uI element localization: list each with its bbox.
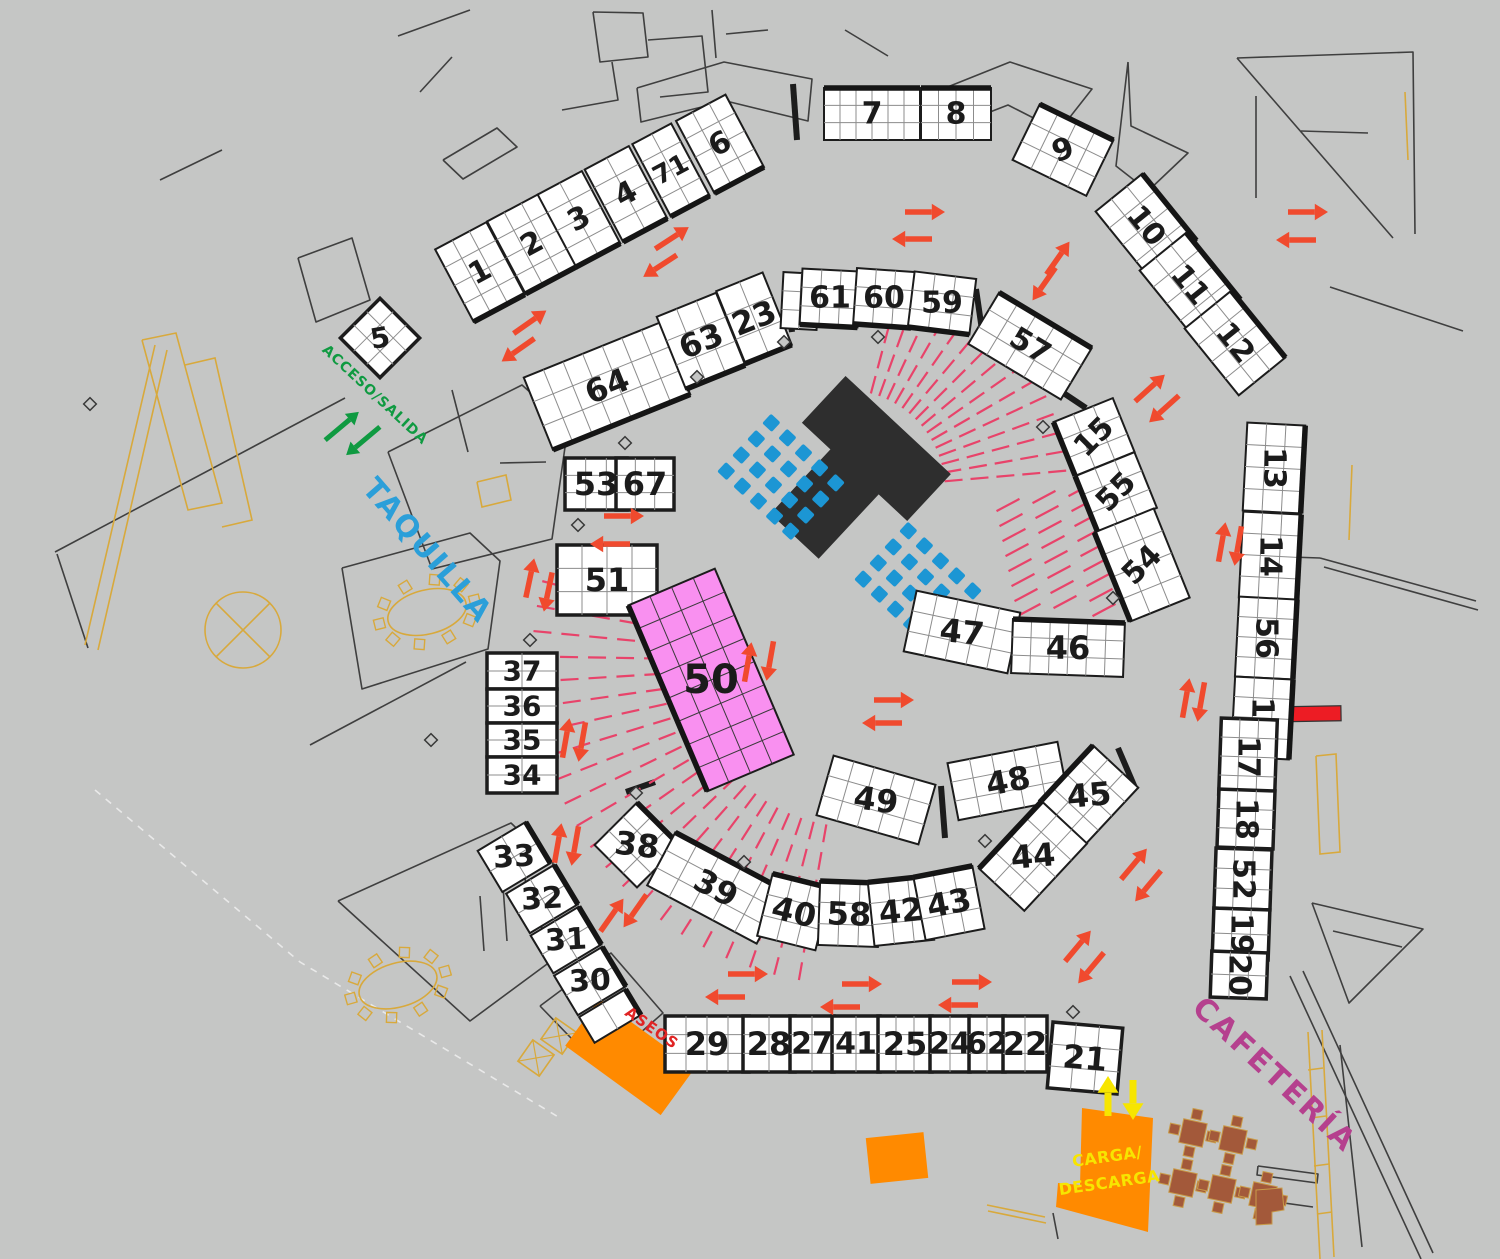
stall-number: 61 <box>809 281 851 316</box>
stall-number: 25 <box>883 1025 928 1063</box>
stall-number: 13 <box>1257 447 1292 489</box>
stall-36: 36 <box>487 689 557 723</box>
stall-number: 59 <box>921 286 963 321</box>
stall-43: 43 <box>913 866 984 940</box>
stall-number: 58 <box>826 894 872 934</box>
stall-number: 29 <box>685 1025 730 1063</box>
stall-number: 50 <box>683 657 739 703</box>
cafe-table-top <box>1179 1119 1207 1147</box>
stall-number: 36 <box>503 690 542 723</box>
cafe-chair <box>1246 1138 1258 1150</box>
cafe-chair <box>1231 1115 1243 1127</box>
stall-number: 24 <box>929 1027 971 1062</box>
stall-thick-edge <box>1013 619 1125 623</box>
cafe-chair <box>1197 1179 1209 1191</box>
stall-37: 37 <box>487 653 557 689</box>
cafe-chair <box>1212 1202 1224 1214</box>
stall-25: 25 <box>878 1016 932 1072</box>
stall-61: 61 <box>800 269 861 328</box>
stall-13: 13 <box>1243 423 1306 514</box>
stall-56: 56 <box>1235 597 1297 680</box>
stall-number: 27 <box>791 1027 833 1062</box>
cafe-table-top <box>1219 1126 1247 1154</box>
stall-number: 38 <box>613 823 662 866</box>
stall-59: 59 <box>908 271 976 334</box>
stall-number: 17 <box>1231 736 1266 778</box>
stall-67: 67 <box>616 458 674 510</box>
stall-number: 44 <box>1009 835 1057 877</box>
stall-number: 56 <box>1249 617 1284 659</box>
cafe-table-top <box>1169 1169 1197 1197</box>
stall-22: 22 <box>1003 1016 1048 1072</box>
stall-number: 22 <box>1003 1025 1048 1063</box>
wall-thick-divider <box>941 786 945 838</box>
cafe-chair <box>1220 1164 1232 1176</box>
audience-dash <box>561 679 579 680</box>
cafe-chair <box>1261 1171 1273 1183</box>
stall-number: 7 <box>862 97 883 132</box>
wall <box>500 462 546 463</box>
stall-52: 52 <box>1214 848 1272 910</box>
stall-number: 19 <box>1224 913 1259 955</box>
stall-46: 46 <box>1011 619 1125 677</box>
stall-number: 49 <box>851 778 900 822</box>
stall-24: 24 <box>929 1016 971 1072</box>
stall-34: 34 <box>487 757 557 793</box>
cafe-chair <box>1191 1108 1203 1120</box>
cafe-chair <box>1238 1186 1250 1198</box>
fair-floor-plan: 1234716578964632361605957101112131456161… <box>0 0 1500 1259</box>
stall-number: 45 <box>1065 774 1113 816</box>
cafe-chair <box>1223 1153 1235 1165</box>
stall-thick-edge <box>800 324 858 327</box>
stall-27: 27 <box>790 1016 834 1072</box>
cafe-chair <box>1168 1123 1180 1135</box>
stall-41: 41 <box>832 1016 880 1072</box>
stall-17: 17 <box>1219 718 1278 796</box>
stall-number: 60 <box>863 281 905 316</box>
stall-number: 18 <box>1229 798 1264 840</box>
stall-number: 33 <box>492 838 536 875</box>
stall-number: 31 <box>544 921 588 958</box>
cafe-table-top <box>1208 1175 1236 1203</box>
audience-dash <box>588 677 606 678</box>
cafe-chair <box>1208 1130 1220 1142</box>
stall-35: 35 <box>487 723 557 757</box>
audience-dash <box>1048 471 1066 473</box>
stall-number: 30 <box>568 962 612 999</box>
stall-7: 7 <box>824 88 920 140</box>
stall-number: 28 <box>747 1025 792 1063</box>
stall-number: 8 <box>946 97 967 132</box>
stall-20: 20 <box>1210 951 1268 999</box>
stall-number: 47 <box>938 611 986 653</box>
stall-number: 41 <box>835 1027 877 1062</box>
stall-60: 60 <box>853 268 915 328</box>
stall-number: 67 <box>623 465 668 503</box>
stall-number: 46 <box>1046 629 1091 667</box>
audience-dash <box>945 480 963 482</box>
stall-18: 18 <box>1217 789 1275 849</box>
cafe-chair <box>1183 1146 1195 1158</box>
stall-number: 14 <box>1253 535 1288 577</box>
stall-number: 35 <box>503 724 542 757</box>
stall-14: 14 <box>1239 512 1301 601</box>
audience-dash <box>996 475 1014 477</box>
stall-number: 32 <box>520 880 564 917</box>
wall-thick-divider <box>793 84 797 140</box>
stall-number: 52 <box>1226 858 1261 900</box>
stall-number: 34 <box>503 759 542 792</box>
audience-dash <box>616 675 634 676</box>
stall-number: 53 <box>574 465 619 503</box>
stall-number: 37 <box>503 655 542 688</box>
stall-28: 28 <box>743 1016 795 1072</box>
stall-number: 51 <box>585 561 630 599</box>
cafe-chair <box>1173 1196 1185 1208</box>
stall-number: 20 <box>1222 954 1257 996</box>
stall-8: 8 <box>921 88 991 140</box>
cafe-chair <box>1181 1158 1193 1170</box>
audience-dash <box>971 477 989 479</box>
audience-dash <box>1022 473 1040 475</box>
small-orange-zone <box>866 1132 928 1184</box>
stall-number: 21 <box>1061 1037 1109 1079</box>
